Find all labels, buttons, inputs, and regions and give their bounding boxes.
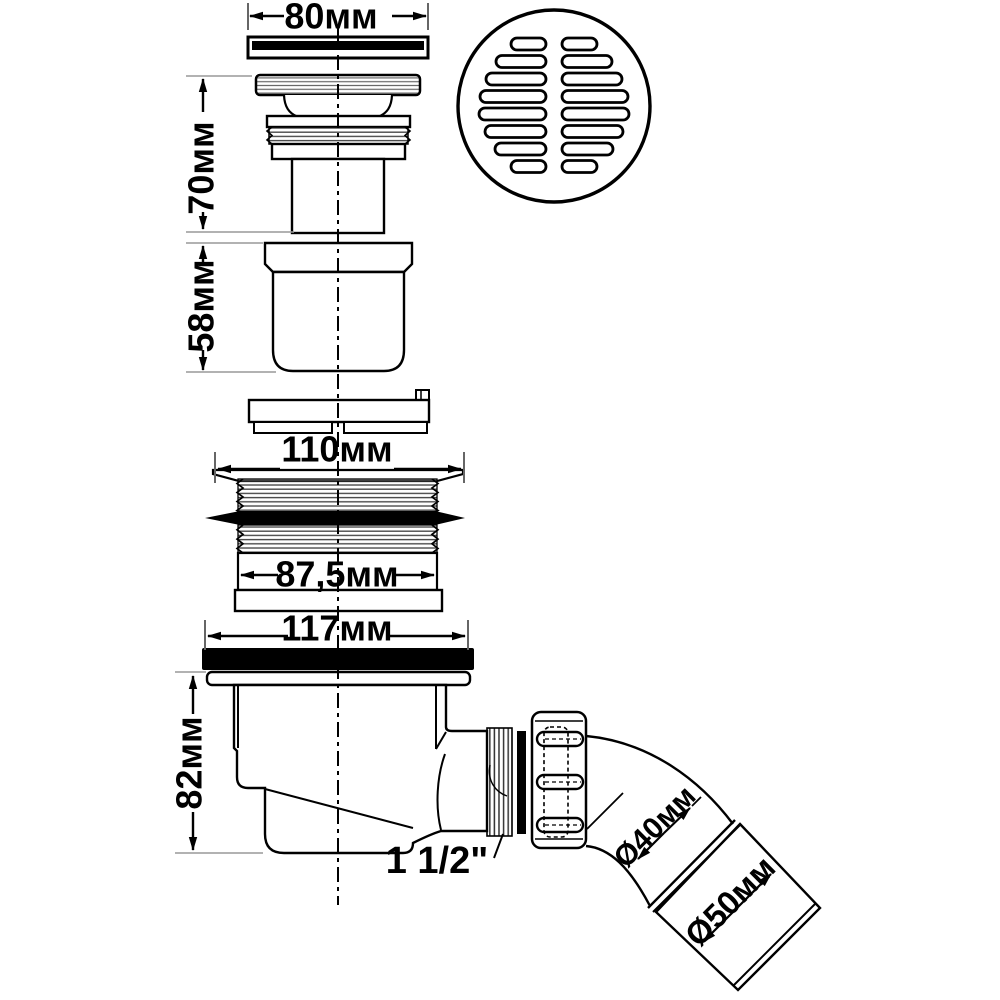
grate-rim — [458, 10, 650, 202]
outlet-thread — [487, 728, 512, 836]
dim-110-label: 110мм — [281, 429, 392, 470]
dimension-thread-size: 1 1/2" — [386, 834, 503, 882]
seal-washer — [517, 731, 526, 834]
dim-80-label: 80мм — [284, 0, 377, 37]
rubber-seal-band — [205, 511, 465, 525]
drain-grate — [458, 10, 650, 202]
thread-size-label: 1 1/2" — [386, 840, 489, 882]
dim-58-label: 58мм — [181, 259, 222, 352]
drawing-canvas: 80мм 70мм 58мм 110мм 87,5мм 117мм — [0, 0, 1000, 1000]
disc-tab — [416, 390, 429, 400]
dim-117-label: 117мм — [281, 608, 392, 649]
dim-82-label: 82мм — [169, 716, 210, 809]
dim-70-label: 70мм — [181, 121, 222, 214]
dim-87-5-label: 87,5мм — [275, 554, 398, 595]
technical-drawing: 80мм 70мм 58мм 110мм 87,5мм 117мм — [0, 0, 1000, 1000]
